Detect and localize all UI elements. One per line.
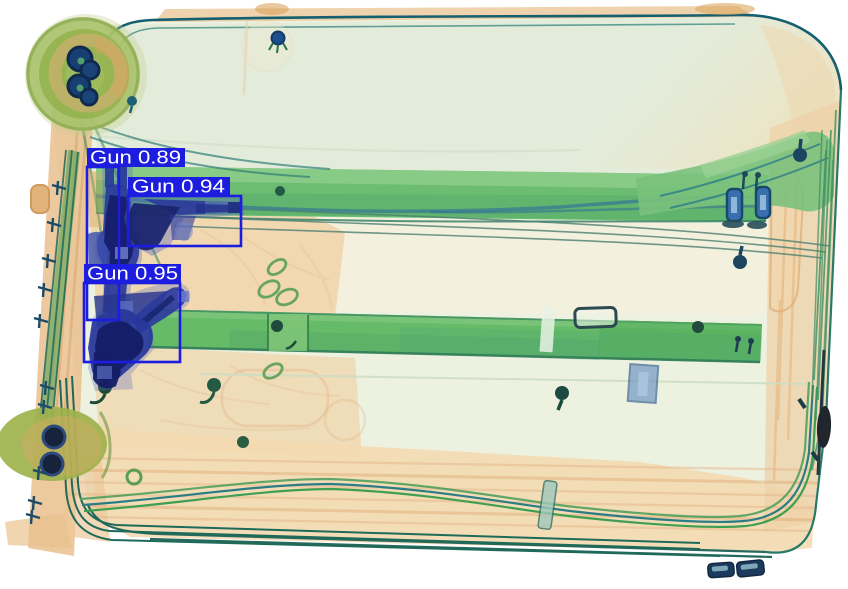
svg-text:Gun 0.94: Gun 0.94 xyxy=(132,177,225,197)
svg-text:Gun 0.89: Gun 0.89 xyxy=(90,148,181,168)
svg-text:Gun 0.95: Gun 0.95 xyxy=(87,264,178,284)
